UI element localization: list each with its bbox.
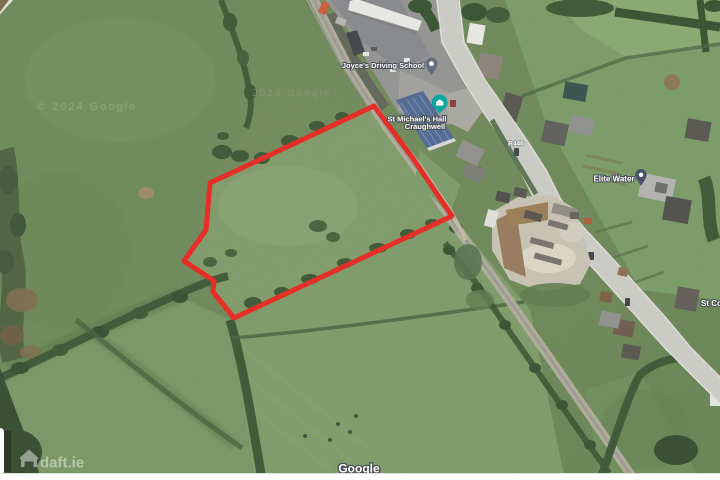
svg-text:R446: R446 bbox=[508, 141, 524, 148]
svg-text:2024 Google: 2024 Google bbox=[252, 88, 331, 99]
svg-text:Craughwell: Craughwell bbox=[405, 122, 445, 131]
svg-text:daft.ie: daft.ie bbox=[40, 455, 84, 472]
svg-text:Elite Water: Elite Water bbox=[593, 175, 634, 184]
svg-text:Joyce's Driving School: Joyce's Driving School bbox=[342, 61, 424, 70]
svg-text:© 2024 Google: © 2024 Google bbox=[37, 101, 137, 113]
svg-text:St Col: St Col bbox=[701, 299, 720, 308]
